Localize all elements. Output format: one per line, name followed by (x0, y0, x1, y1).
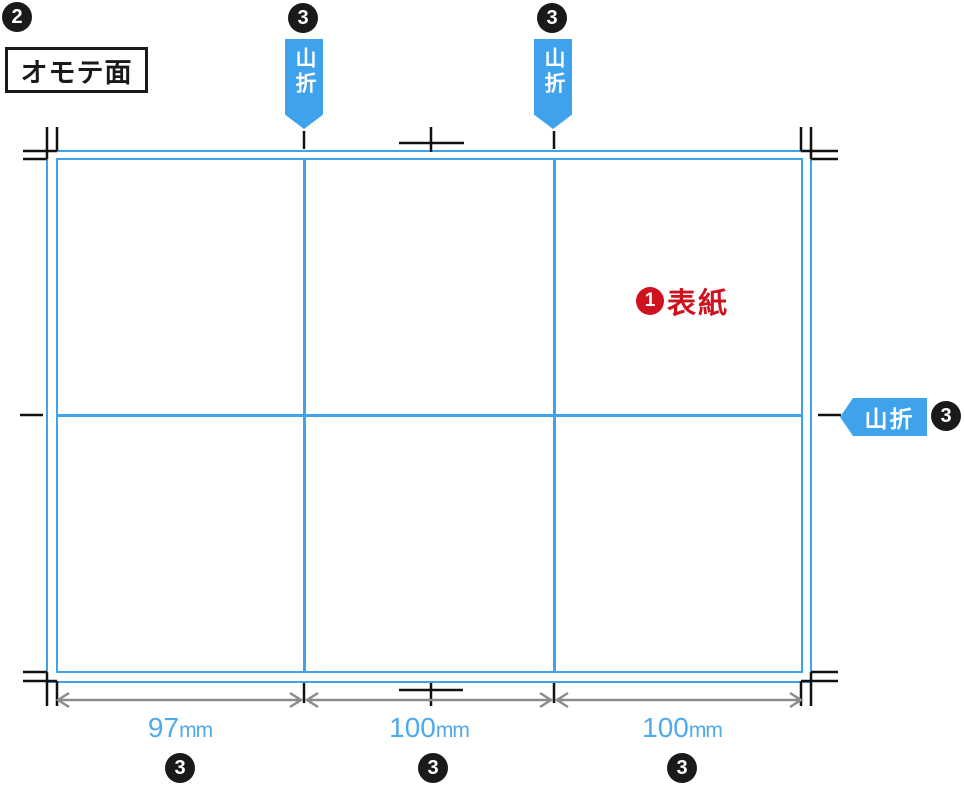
cover-number-badge: 1 (636, 287, 664, 315)
dimension-value: 100 (389, 712, 436, 743)
dimension-arrow-2 (307, 693, 551, 707)
dimension-arrow-1 (58, 693, 301, 707)
cover-panel-label: 1 表紙 (636, 280, 729, 322)
dimension-value: 100 (642, 712, 689, 743)
cover-label-text: 表紙 (667, 280, 729, 322)
side-label: オモテ面 (5, 47, 148, 93)
center-trim-mark-top (399, 127, 464, 152)
dimension-label-1: 97mm (110, 712, 250, 744)
dimension-unit: mm (689, 719, 722, 742)
step-3-badge: 3 (418, 753, 448, 783)
dimension-label-3: 100mm (612, 712, 752, 744)
mountain-fold-flag-top-2: 山折 (534, 39, 572, 129)
mountain-fold-flag-right: 山折 (840, 398, 927, 436)
fold-guide-diagram: 2 オモテ面 3 山折 3 (0, 0, 964, 786)
mountain-fold-label: 山折 (538, 39, 568, 129)
dimension-value: 97 (148, 712, 179, 743)
fold-line-horizontal (57, 414, 803, 417)
dimension-unit: mm (179, 719, 212, 742)
step-3-badge: 3 (537, 3, 567, 33)
dimension-arrow-3 (557, 693, 801, 707)
dimension-label-2: 100mm (359, 712, 499, 744)
step-3-badge: 3 (288, 3, 318, 33)
mountain-fold-flag-top-1: 山折 (285, 39, 323, 129)
mountain-fold-label: 山折 (289, 39, 319, 129)
step-3-badge: 3 (165, 753, 195, 783)
step-3-badge: 3 (667, 753, 697, 783)
step-3-badge: 3 (931, 401, 961, 431)
step-2-badge: 2 (2, 2, 32, 32)
dimension-unit: mm (436, 719, 469, 742)
center-trim-mark-bottom (399, 683, 463, 706)
mountain-fold-label: 山折 (853, 400, 915, 434)
